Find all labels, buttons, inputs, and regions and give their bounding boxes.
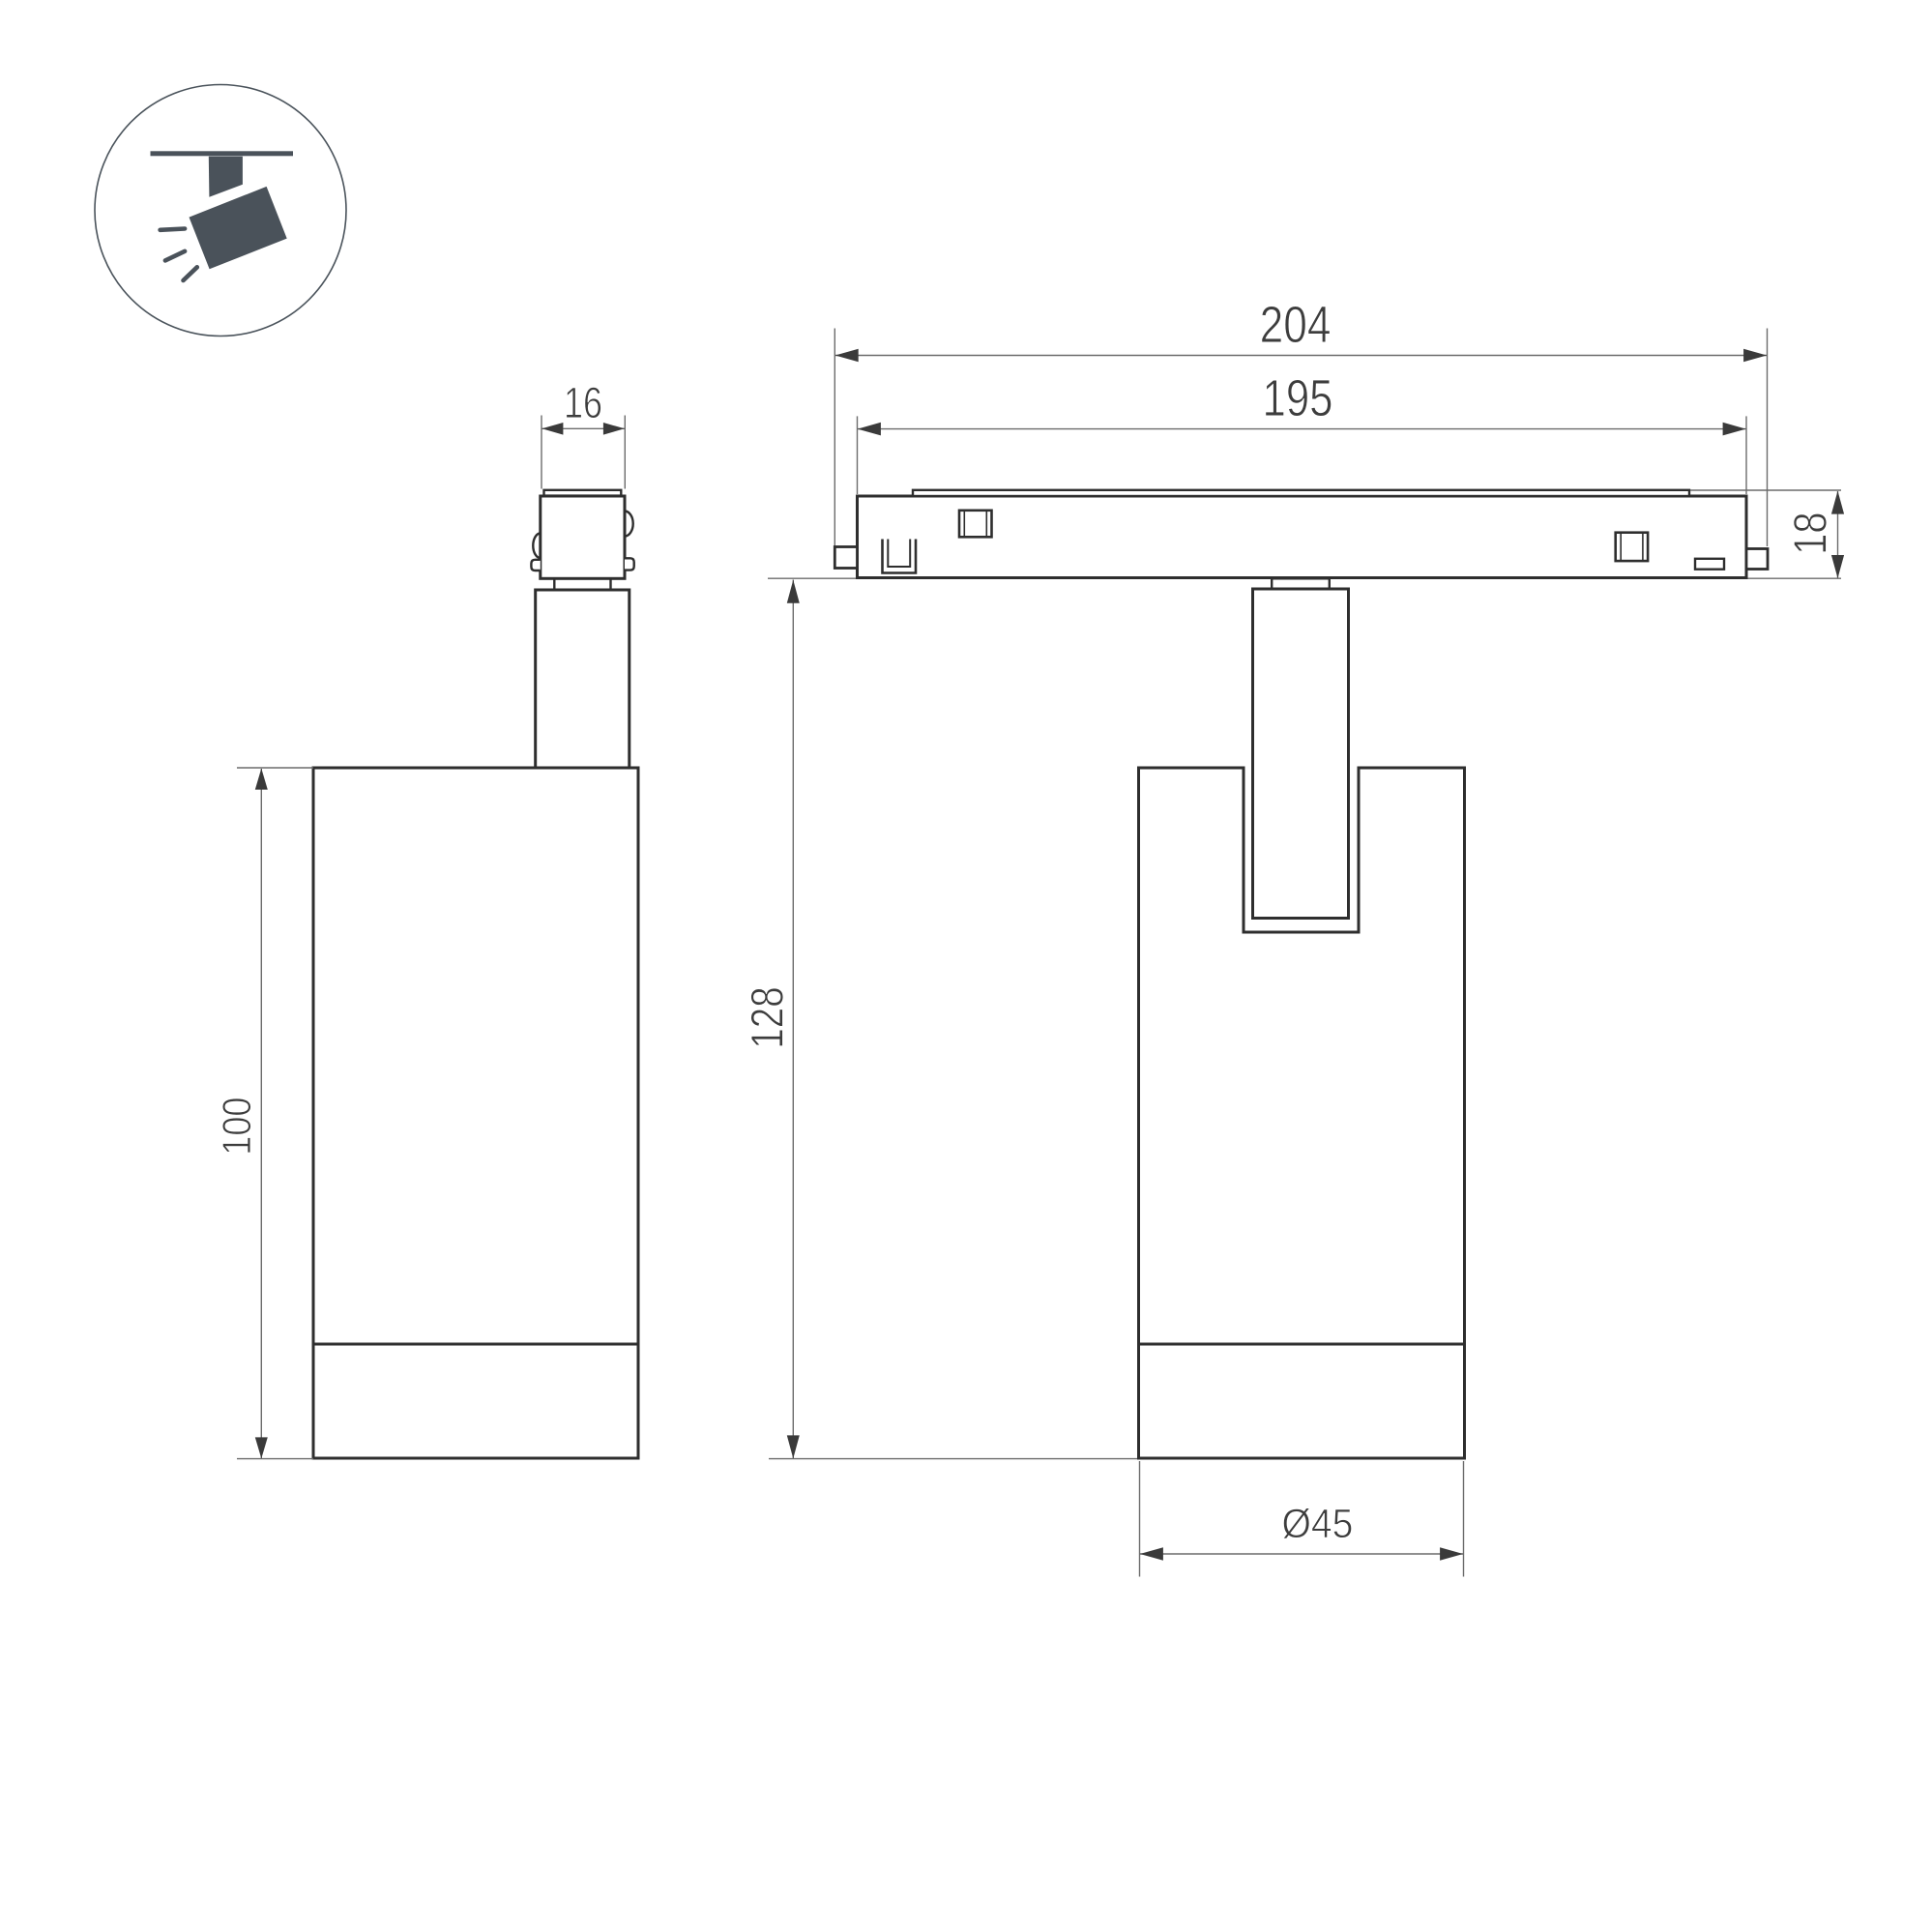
svg-text:128: 128 [743,986,794,1048]
svg-text:16: 16 [564,378,602,427]
svg-text:100: 100 [216,1097,260,1155]
svg-text:18: 18 [1785,512,1837,554]
svg-text:195: 195 [1263,370,1333,427]
svg-text:Ø45: Ø45 [1281,1500,1353,1546]
svg-text:204: 204 [1260,296,1332,354]
